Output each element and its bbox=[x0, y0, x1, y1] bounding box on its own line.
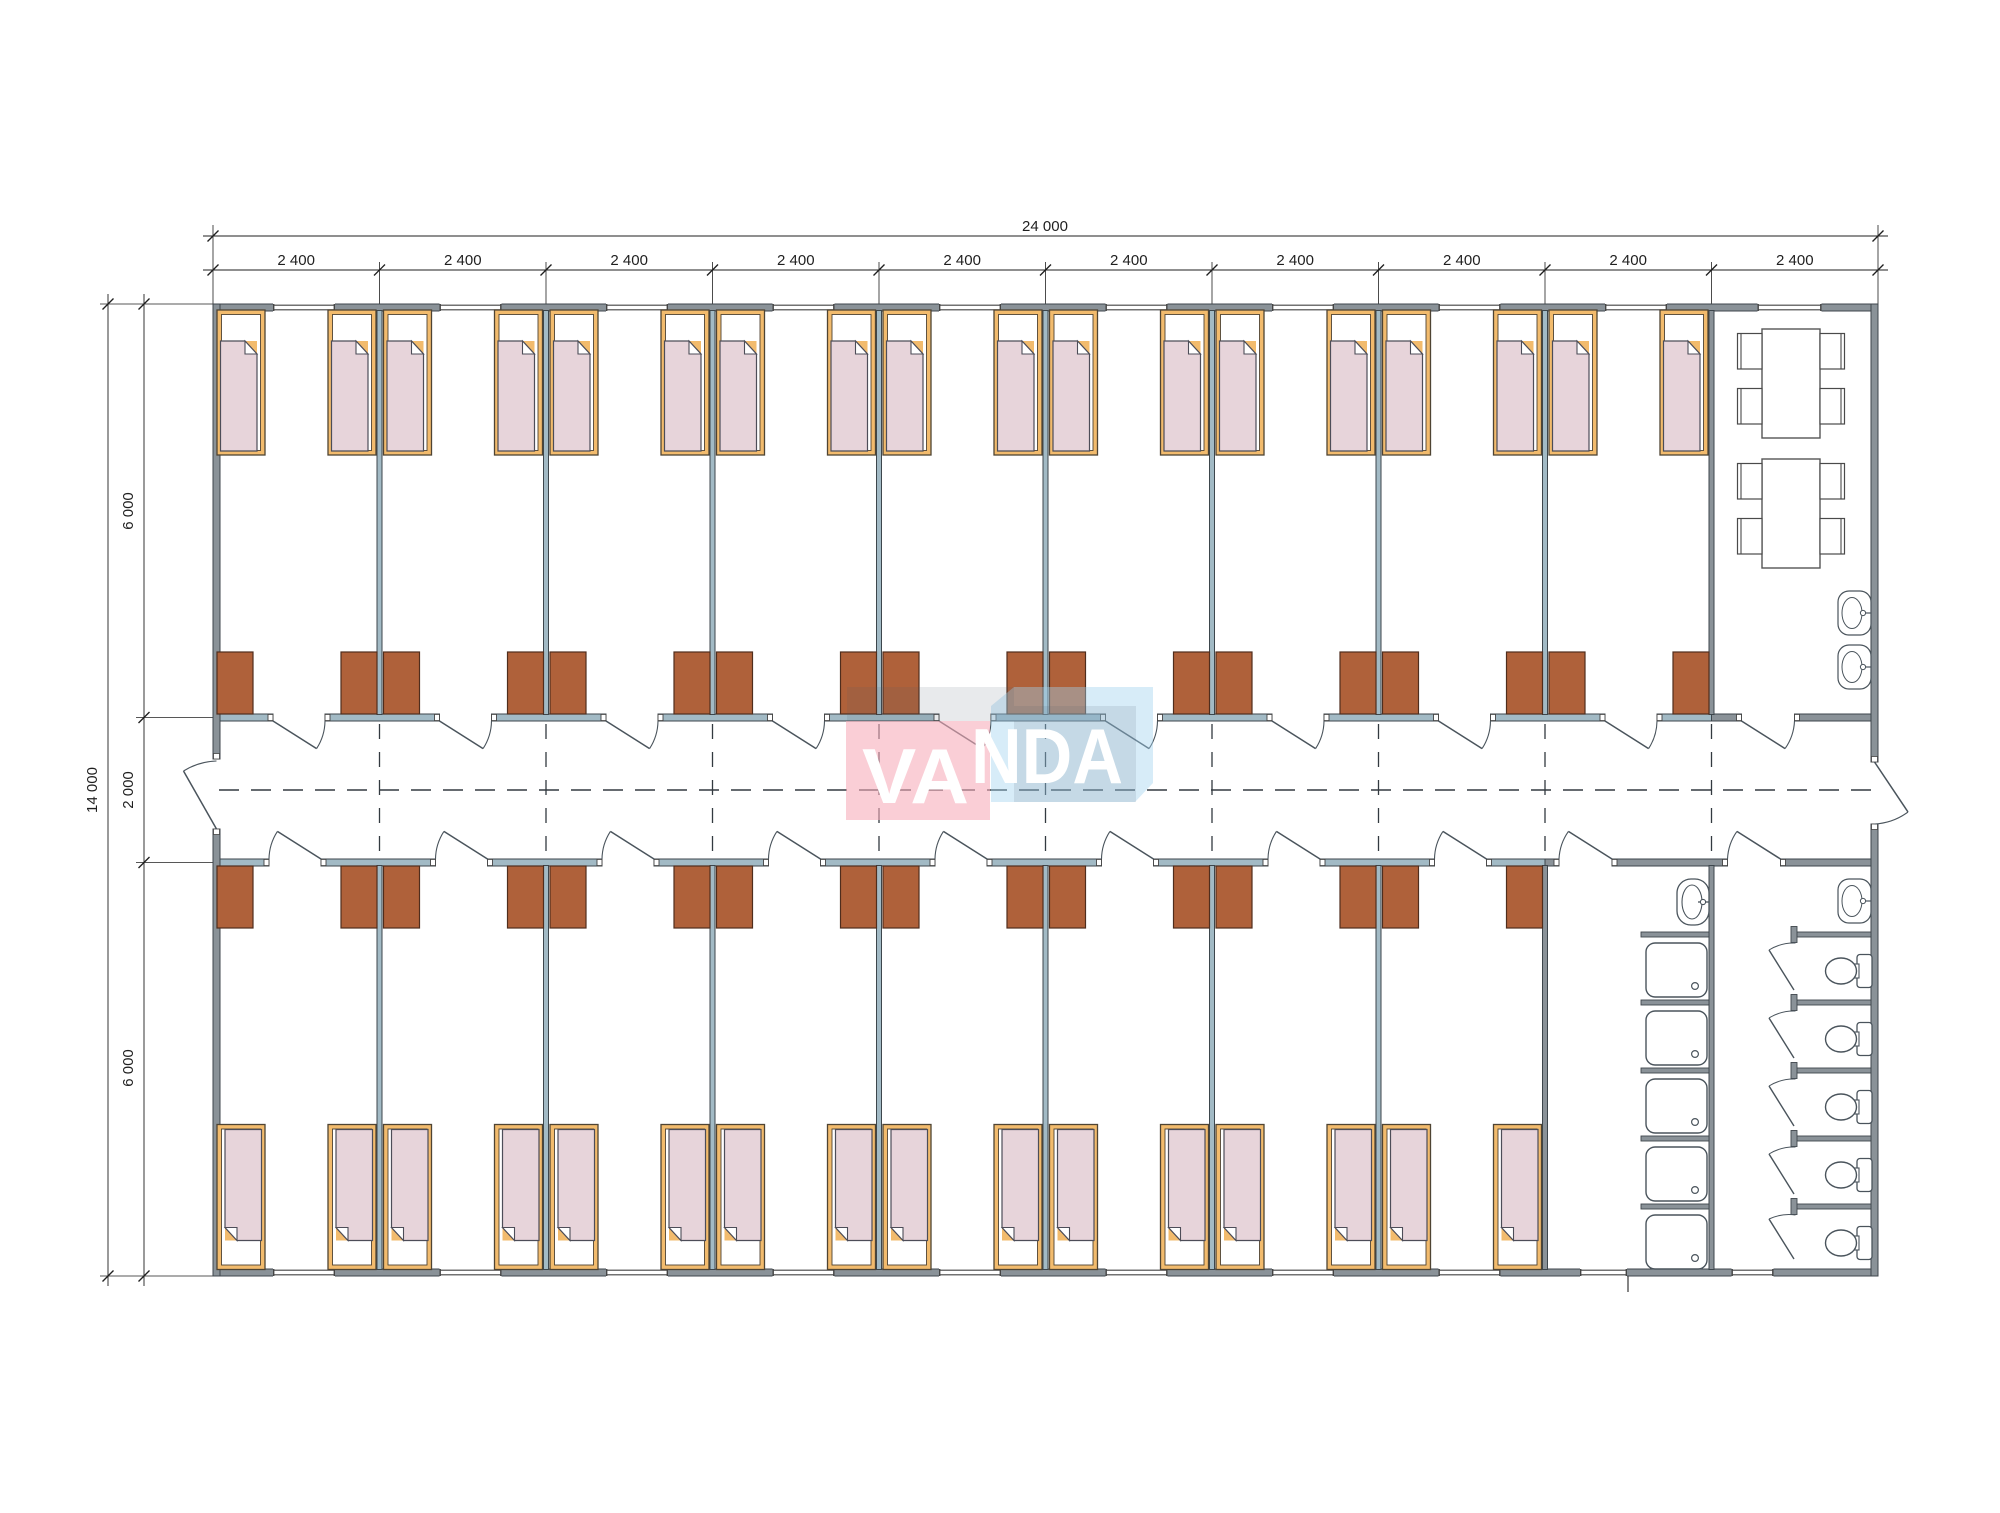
svg-text:6 000: 6 000 bbox=[120, 492, 137, 530]
svg-text:2 400: 2 400 bbox=[1776, 252, 1814, 269]
svg-text:14 000: 14 000 bbox=[84, 767, 101, 813]
svg-text:2 400: 2 400 bbox=[1609, 252, 1647, 269]
svg-text:2 400: 2 400 bbox=[943, 252, 981, 269]
svg-text:2 400: 2 400 bbox=[277, 252, 315, 269]
svg-text:2 400: 2 400 bbox=[444, 252, 482, 269]
svg-text:2 400: 2 400 bbox=[1110, 252, 1148, 269]
svg-text:2 000: 2 000 bbox=[120, 771, 137, 809]
svg-text:NDA: NDA bbox=[971, 712, 1123, 800]
svg-text:24 000: 24 000 bbox=[1022, 218, 1068, 235]
svg-text:2 400: 2 400 bbox=[610, 252, 648, 269]
svg-text:2 400: 2 400 bbox=[1276, 252, 1314, 269]
svg-text:6 000: 6 000 bbox=[120, 1049, 137, 1087]
svg-text:VA: VA bbox=[862, 732, 969, 820]
svg-text:2 400: 2 400 bbox=[777, 252, 815, 269]
svg-text:2 400: 2 400 bbox=[1443, 252, 1481, 269]
